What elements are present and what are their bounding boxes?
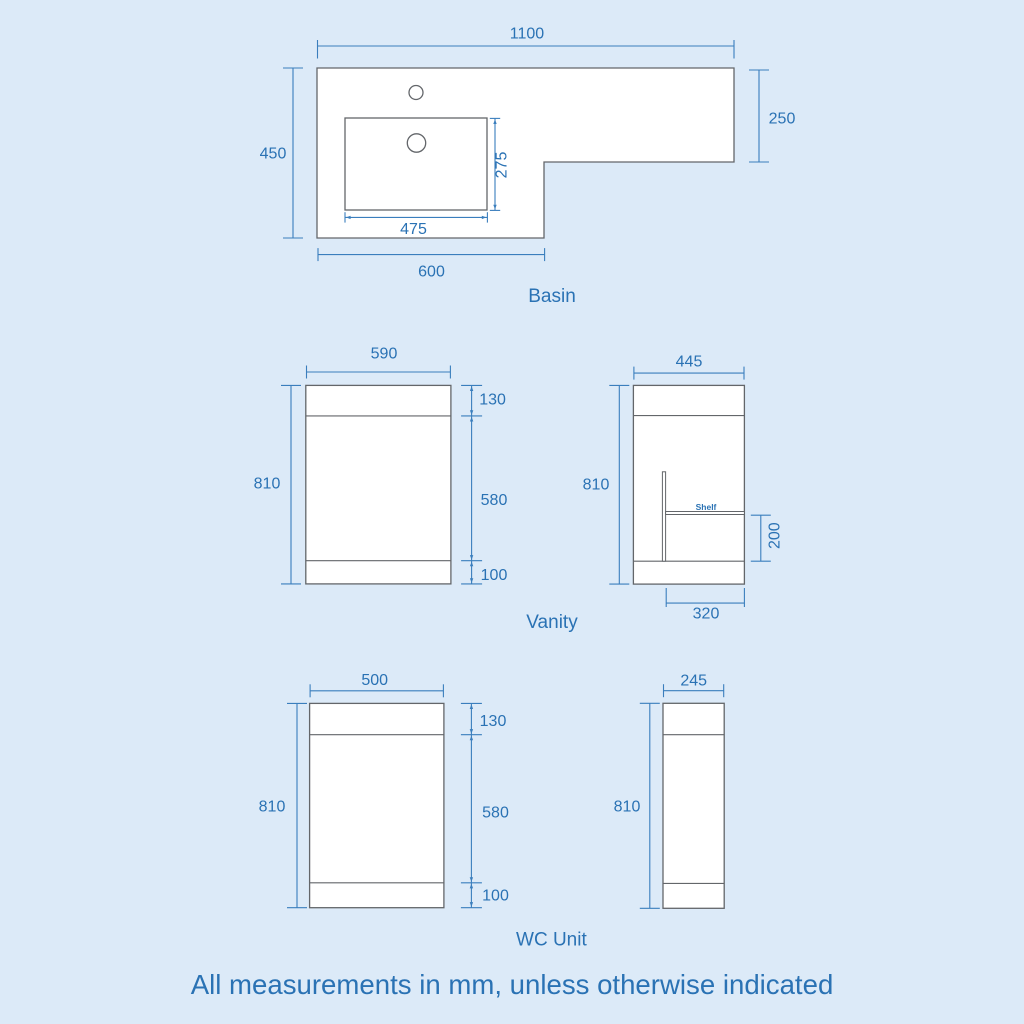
svg-text:450: 450 [260, 145, 287, 162]
svg-text:100: 100 [481, 567, 508, 584]
svg-text:810: 810 [583, 476, 610, 493]
svg-text:All measurements in mm, unless: All measurements in mm, unless otherwise… [191, 969, 834, 1000]
svg-text:Shelf: Shelf [696, 502, 717, 512]
svg-text:130: 130 [480, 713, 507, 730]
svg-text:200: 200 [767, 522, 784, 549]
svg-text:580: 580 [481, 492, 508, 509]
svg-text:1100: 1100 [510, 26, 545, 43]
svg-text:320: 320 [693, 606, 720, 623]
svg-text:Vanity: Vanity [526, 612, 578, 633]
svg-text:Basin: Basin [528, 286, 576, 307]
svg-text:810: 810 [259, 799, 286, 816]
svg-text:500: 500 [361, 672, 388, 689]
svg-text:WC Unit: WC Unit [516, 930, 587, 951]
svg-text:130: 130 [479, 391, 506, 408]
svg-text:810: 810 [254, 476, 281, 493]
svg-text:100: 100 [482, 887, 509, 904]
svg-text:250: 250 [769, 110, 796, 127]
svg-text:600: 600 [418, 263, 445, 280]
svg-text:475: 475 [400, 221, 427, 238]
svg-text:580: 580 [482, 804, 509, 821]
svg-text:590: 590 [371, 345, 398, 362]
svg-text:445: 445 [676, 353, 703, 370]
svg-text:245: 245 [680, 672, 707, 689]
svg-text:810: 810 [614, 798, 641, 815]
svg-text:275: 275 [494, 152, 511, 179]
